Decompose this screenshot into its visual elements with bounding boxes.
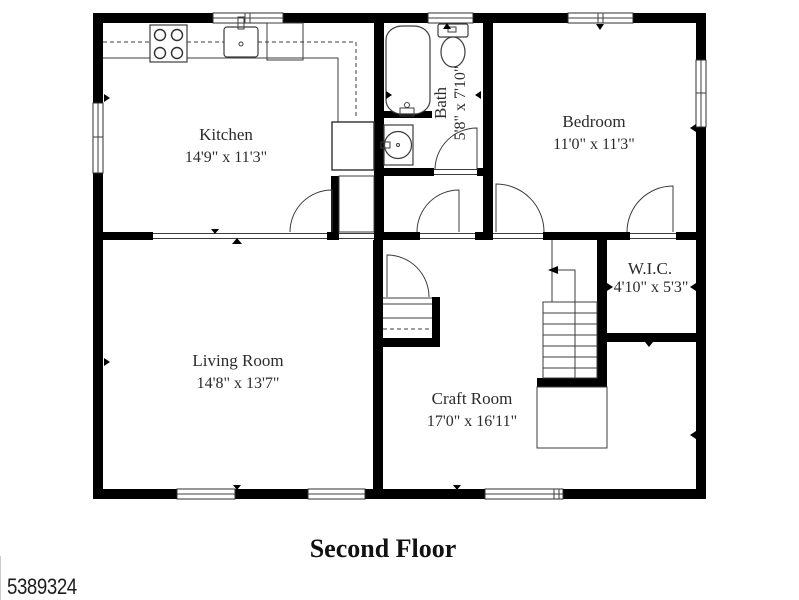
floor-plan: Kitchen 14'9" x 11'3" Bedroom 11'0" x 11… [0, 0, 799, 600]
staircase [537, 240, 607, 448]
kitchen-pantry-cabinet [332, 122, 374, 170]
window-kitchen [213, 13, 283, 23]
wall-hall-bottom-a [374, 232, 420, 240]
wall-bath-bottom-stub [477, 168, 483, 176]
window-kitchen-left [93, 103, 103, 173]
wall-bath-left [374, 23, 384, 176]
wall-bath-bottom [374, 168, 434, 176]
door-wic [627, 186, 673, 232]
wall-craft-closet-bottom [373, 338, 440, 347]
wall-living-craft-divider [373, 240, 383, 489]
window-bedroom-right [696, 60, 706, 127]
wall-wic-top [676, 232, 696, 240]
window-living-1 [177, 489, 235, 499]
craft-closet [383, 318, 432, 329]
stair-up-arrow [548, 266, 558, 274]
doors [290, 128, 673, 297]
hall-closet-interior [339, 176, 374, 232]
label-bath-group: Bath 5'8" x 7'10" [431, 66, 469, 141]
label-bath: Bath [431, 86, 450, 119]
dims-wic: 4'10" x 5'3" [614, 279, 689, 296]
label-living-room: Living Room [192, 351, 283, 370]
stair-treads [543, 313, 597, 368]
page-edge-line [0, 556, 1, 600]
door-kitchen [290, 190, 332, 232]
door-hall [417, 190, 459, 232]
vanity-sink-icon [381, 125, 413, 165]
dims-kitchen: 14'9" x 11'3" [185, 149, 267, 166]
door-bedroom [496, 184, 544, 232]
window-bath [428, 13, 473, 23]
dims-living-room: 14'8" x 13'7" [197, 375, 280, 392]
wall-stairs-bottom [537, 378, 607, 387]
window-living-2 [308, 489, 365, 499]
label-bedroom: Bedroom [562, 112, 625, 131]
wall-left [93, 13, 103, 499]
stove-icon [150, 25, 187, 62]
wall-stairs-right [597, 232, 607, 387]
window-craft [485, 489, 563, 499]
window-bedroom-top [568, 13, 633, 23]
label-kitchen: Kitchen [199, 125, 253, 144]
counter-edge [103, 58, 374, 122]
door-craft-closet [387, 255, 429, 297]
wall-wic-bottom [597, 333, 696, 342]
dims-bath: 5'8" x 7'10" [452, 66, 469, 141]
wall-craft-closet-right [432, 297, 440, 347]
cased-opening-kitchen-living [153, 234, 327, 239]
listing-id: 5389324 [7, 576, 77, 600]
wall-bedroom-left [483, 23, 493, 240]
wall-hall-bottom-b [475, 232, 483, 240]
stair-lower-landing [537, 387, 607, 448]
label-wic: W.I.C. [628, 259, 672, 278]
floor-plan-page: Kitchen 14'9" x 11'3" Bedroom 11'0" x 11… [0, 0, 799, 600]
wall-kitchen-living-a [93, 232, 153, 240]
dims-bedroom: 11'0" x 11'3" [553, 136, 635, 153]
plan-title: Second Floor [310, 534, 457, 563]
dims-craft-room: 17'0" x 16'11" [427, 413, 517, 430]
wall-hall-closet-right [374, 176, 384, 232]
label-craft-room: Craft Room [432, 389, 513, 408]
toilet-icon [438, 24, 468, 67]
room-labels: Kitchen 14'9" x 11'3" Bedroom 11'0" x 11… [185, 66, 689, 430]
bathtub-icon [386, 26, 430, 116]
wall-bedroom-bottom [543, 232, 630, 240]
